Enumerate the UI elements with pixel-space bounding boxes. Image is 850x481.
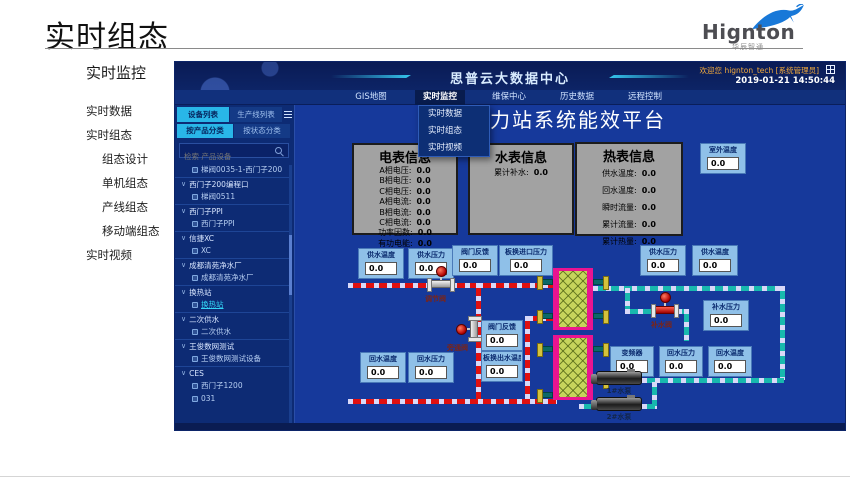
sidebar-item-realtime-video[interactable]: 实时视频 <box>86 247 186 263</box>
heat-exchanger-top <box>553 268 593 330</box>
scada-header: 思普云大数据中心 欢迎您 hignton_tech [系统管理员] 2019-0… <box>175 62 845 90</box>
gauge-hx-outlet-temp: 板换出水温度0.0 <box>481 351 523 382</box>
gauge-makeup-pressure: 补水压力0.0 <box>703 300 749 331</box>
pipe-makeup-elbow <box>684 309 689 341</box>
regulating-valve-label: 调节阀 <box>425 294 446 304</box>
tree-group[interactable]: ∨二次供水 <box>175 312 289 325</box>
canvas-title: 热力站系统能效平台 <box>468 104 666 133</box>
hignton-logo: Hignton 华辰智通 <box>698 4 808 52</box>
sidebar-item-single-hmi[interactable]: 单机组态 <box>86 175 186 191</box>
pump-2-label: 2#水泵 <box>596 412 642 422</box>
hx-port <box>593 346 605 352</box>
device-icon <box>192 194 198 200</box>
sidebar-item-hmi-design[interactable]: 组态设计 <box>86 151 186 167</box>
sidebar-item-realtime-hmi[interactable]: 实时组态 <box>86 127 186 143</box>
tree-leaf[interactable]: 成都清苑净水厂 <box>175 271 289 284</box>
logo-subtitle: 华辰智通 <box>732 42 764 52</box>
logo-text: Hignton <box>702 20 795 44</box>
device-icon <box>192 275 198 281</box>
pump-1-label: 1#水泵 <box>596 386 642 396</box>
title-divider <box>45 48 803 49</box>
sidebar: 实时监控 实时数据 实时组态 组态设计 单机组态 产线组态 移动端组态 实时视频 <box>86 62 186 271</box>
tree-group[interactable]: ∨成都清苑净水厂 <box>175 258 289 271</box>
menu-item-realtime-data[interactable]: 实时数据 <box>419 106 489 123</box>
collapse-panel-icon[interactable] <box>283 107 293 122</box>
sidebar-header: 实时监控 <box>86 62 186 83</box>
tree-leaf[interactable]: 二次供水 <box>175 325 289 338</box>
gauge-return-temp-1: 回水温度0.0 <box>360 352 406 383</box>
chevron-down-icon: ∨ <box>181 208 186 215</box>
tab-maintenance[interactable]: 维保中心 <box>483 90 535 105</box>
tree-group[interactable]: ∨西门子PPI <box>175 204 289 217</box>
header-decor-left <box>331 75 411 78</box>
menu-item-realtime-video[interactable]: 实时视频 <box>419 140 489 157</box>
device-panel-tabs: 设备列表 生产线列表 <box>177 107 293 122</box>
tree-leaf[interactable]: XC <box>175 244 289 257</box>
tree-group[interactable]: ∨换热站 <box>175 285 289 298</box>
menu-item-realtime-hmi[interactable]: 实时组态 <box>419 123 489 140</box>
tree-leaf[interactable]: 西门子PPI <box>175 217 289 230</box>
gauge-supply-temp-1: 供水温度0.0 <box>358 248 404 279</box>
welcome-label: 欢迎您 <box>700 66 723 75</box>
heat-exchanger-bottom <box>553 335 593 400</box>
hx-port <box>541 279 553 285</box>
footer-divider <box>0 476 850 477</box>
tab-by-status[interactable]: 按状态分类 <box>234 124 290 138</box>
pipe-supply-secondary <box>593 286 785 291</box>
page: 实时组态 Hignton 华辰智通 实时监控 实时数据 实时组态 组态设计 单机… <box>0 0 850 481</box>
gauge-outdoor-temp: 室外温度0.0 <box>700 143 746 174</box>
tree-leaf[interactable]: 031 <box>175 392 289 405</box>
sidebar-item-realtime-data[interactable]: 实时数据 <box>86 103 186 119</box>
panel-title: 热表信息 <box>577 146 681 165</box>
chevron-down-icon: ∨ <box>181 370 186 377</box>
tree-leaf[interactable]: 梯阀0511 <box>175 190 289 203</box>
sidebar-item-mobile-hmi[interactable]: 移动端组态 <box>86 223 186 239</box>
chevron-down-icon: ∨ <box>181 316 186 323</box>
tab-realtime-monitor[interactable]: 实时监控 <box>415 90 465 105</box>
tree-leaf-selected[interactable]: 换热站 <box>175 298 289 311</box>
tab-remote-control[interactable]: 远程控制 <box>619 90 671 105</box>
device-search <box>179 143 289 158</box>
pipe-pump2-riser <box>652 382 657 406</box>
device-icon <box>192 248 198 254</box>
pipe-secondary-riser <box>780 286 785 380</box>
device-panel: 设备列表 生产线列表 按产品分类 按状态分类 梯阀0035-1-西门子200 ∨… <box>175 105 295 430</box>
device-panel-subtabs: 按产品分类 按状态分类 <box>177 124 293 138</box>
device-icon <box>192 396 198 402</box>
heat-meter-panel: 热表信息 供水温度:0.0 回水温度:0.0 瞬时流量:0.0 累计流量:0.0… <box>575 142 683 236</box>
gauge-hx-inlet-pressure: 板换进口压力0.0 <box>499 245 553 276</box>
pump-body-icon <box>596 397 642 411</box>
tab-device-list[interactable]: 设备列表 <box>177 107 229 122</box>
tree-leaf[interactable]: 梯阀0035-1-西门子200 <box>175 163 289 176</box>
welcome-text: 欢迎您 hignton_tech [系统管理员] <box>700 65 819 76</box>
device-icon <box>192 302 198 308</box>
monitor-dropdown-menu: 实时数据 实时组态 实时视频 <box>418 105 490 157</box>
tree-group[interactable]: ∨信捷XC <box>175 231 289 244</box>
scada-footer-strip <box>175 423 845 430</box>
scada-screenshot: 思普云大数据中心 欢迎您 hignton_tech [系统管理员] 2019-0… <box>175 62 845 430</box>
tab-history-data[interactable]: 历史数据 <box>551 90 603 105</box>
scada-title: 思普云大数据中心 <box>415 68 605 87</box>
scada-nav: GIS地图 实时监控 维保中心 历史数据 远程控制 <box>175 90 845 105</box>
device-icon <box>192 383 198 389</box>
tree-group[interactable]: ∨CES <box>175 366 289 379</box>
header-decor-right <box>609 75 689 78</box>
bypass-valve[interactable] <box>456 318 478 340</box>
pump-2[interactable]: 2#水泵 <box>596 397 642 422</box>
makeup-water-valve[interactable] <box>651 292 679 314</box>
tree-group[interactable]: ∨王俊数网测试 <box>175 339 289 352</box>
pump-body-icon <box>596 371 642 385</box>
gauge-return-temp-2: 回水温度0.0 <box>708 346 752 377</box>
menu-grid-icon[interactable] <box>826 65 835 74</box>
makeup-valve-label: 补水阀 <box>651 320 672 330</box>
device-search-input[interactable] <box>180 150 270 163</box>
gauge-valve-feedback-2: 阀门反馈0.0 <box>481 320 523 351</box>
gauge-valve-feedback-1: 阀门反馈0.0 <box>452 245 498 276</box>
datetime: 2019-01-21 14:50:44 <box>735 76 835 86</box>
search-icon[interactable] <box>275 147 284 156</box>
regulating-valve[interactable] <box>427 266 455 288</box>
gauge-supply-temp-2: 供水温度0.0 <box>692 245 738 276</box>
hx-port <box>541 392 553 398</box>
tab-production-line[interactable]: 生产线列表 <box>230 107 282 122</box>
hx-port <box>593 279 605 285</box>
pipe-hx-return-riser <box>525 316 530 401</box>
device-icon <box>192 221 198 227</box>
gauge-return-pressure-2: 回水压力0.0 <box>659 346 703 377</box>
pump-1[interactable]: 1#水泵 <box>596 371 642 396</box>
username: hignton_tech [系统管理员] <box>724 66 819 75</box>
pipe-pump-discharge <box>642 378 784 383</box>
scrollbar-thumb[interactable] <box>289 235 292 295</box>
page-title: 实时组态 <box>45 12 169 56</box>
chevron-down-icon: ∨ <box>181 289 186 296</box>
valve-actuator-icon <box>436 266 447 277</box>
device-icon <box>192 167 198 173</box>
chevron-down-icon: ∨ <box>181 343 186 350</box>
tree-group[interactable]: ∨西门子200编程口 <box>175 177 289 190</box>
bypass-valve-label: 旁通阀 <box>447 343 468 353</box>
chevron-down-icon: ∨ <box>181 235 186 242</box>
gauge-return-pressure-1: 回水压力0.0 <box>408 352 454 383</box>
tab-by-product[interactable]: 按产品分类 <box>177 124 233 138</box>
hx-port <box>541 346 553 352</box>
tree-leaf[interactable]: 王俊数网测试设备 <box>175 352 289 365</box>
chevron-down-icon: ∨ <box>181 262 186 269</box>
sidebar-item-line-hmi[interactable]: 产线组态 <box>86 199 186 215</box>
chevron-down-icon: ∨ <box>181 181 186 188</box>
valve-actuator-icon <box>660 292 671 303</box>
device-tree: 梯阀0035-1-西门子200 ∨西门子200编程口 梯阀0511 ∨西门子PP… <box>175 163 289 427</box>
device-icon <box>192 356 198 362</box>
tree-leaf[interactable]: 西门子1200 <box>175 379 289 392</box>
tab-gis-map[interactable]: GIS地图 <box>345 90 397 105</box>
hx-port <box>593 313 605 319</box>
device-icon <box>192 329 198 335</box>
valve-actuator-icon <box>456 324 467 335</box>
tree-scrollbar[interactable] <box>289 165 292 425</box>
hx-port <box>541 313 553 319</box>
gauge-supply-pressure-2: 供水压力0.0 <box>640 245 686 276</box>
